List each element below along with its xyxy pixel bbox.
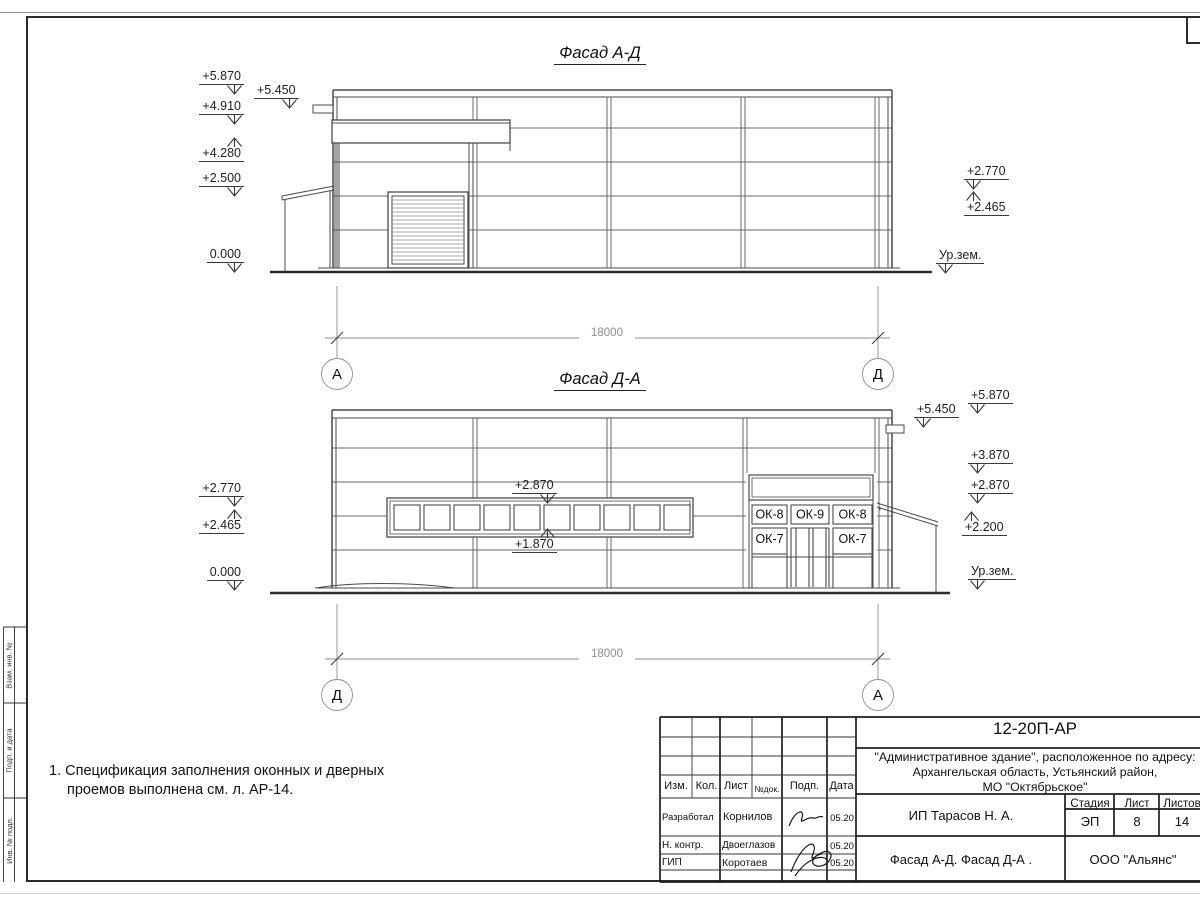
window-label: ОК-7 bbox=[838, 532, 866, 546]
drawing-sheet: Фасад А-Д +5.870 + bbox=[0, 0, 1200, 900]
stamp-side-cell: Подп. и дата bbox=[1, 703, 17, 798]
tb-project-line-3: МО "Октябрьское" bbox=[856, 780, 1200, 794]
sheet-note: 1. Спецификация заполнения оконных и две… bbox=[49, 762, 384, 800]
tb-stage-label: Стадия bbox=[1066, 797, 1114, 811]
tb-col-data: Дата bbox=[827, 779, 856, 793]
tb-date-developed: 05.20 bbox=[828, 812, 856, 826]
elevation-value: +4.280 bbox=[199, 147, 244, 162]
elevation-value: +2.770 bbox=[199, 482, 244, 497]
level-tick-down-icon bbox=[281, 99, 298, 109]
window-label: ОК-9 bbox=[796, 508, 824, 522]
tb-name-ncontrol: Двоеглазов bbox=[722, 839, 775, 853]
facade-ad-drawing bbox=[260, 75, 940, 280]
level-tick-down-icon bbox=[969, 404, 986, 414]
elevation-mark: +2.200 bbox=[962, 511, 1007, 536]
elevation-value: +2.465 bbox=[964, 201, 1009, 216]
elevation-mark: Ур.зем. bbox=[936, 249, 984, 274]
elevation-mark: +4.280 bbox=[199, 137, 244, 162]
elevation-value: 0.000 bbox=[207, 566, 244, 581]
elevation-mark: +1.870 bbox=[512, 528, 557, 553]
elevation-mark: 0.000 bbox=[207, 566, 244, 591]
tb-role-developed: Разработал bbox=[662, 811, 714, 825]
tb-col-izm: Изм. bbox=[660, 779, 692, 793]
elevation-value: 0.000 bbox=[207, 248, 244, 263]
elevation-mark: +2.465 bbox=[964, 191, 1009, 216]
note-line-1: 1. Спецификация заполнения оконных и две… bbox=[49, 762, 384, 781]
tb-client: ИП Тарасов Н. А. bbox=[857, 809, 1065, 823]
elevation-mark: +2.870 bbox=[968, 479, 1013, 504]
tb-date-gip: 05.20 bbox=[828, 857, 856, 871]
elevation-mark: +2.870 bbox=[512, 479, 557, 504]
tb-name-gip: Коротаев bbox=[722, 856, 767, 870]
tb-name-developed: Корнилов bbox=[723, 810, 772, 824]
stamp-side-cell: Инв. № подл. bbox=[1, 798, 17, 882]
tb-col-podp: Подп. bbox=[782, 779, 827, 793]
corner-doc-box bbox=[1186, 18, 1200, 44]
stamp-side-label: Подп. и дата bbox=[5, 728, 14, 772]
tb-col-kol: Кол. bbox=[693, 779, 720, 793]
axis-label: А bbox=[332, 366, 342, 383]
tb-role-ncontrol: Н. контр. bbox=[662, 839, 703, 853]
tb-company: ООО "Альянс" bbox=[1066, 853, 1200, 867]
axis-label: Д bbox=[873, 366, 883, 383]
window-label: ОК-8 bbox=[838, 508, 866, 522]
elevation-value: +2.870 bbox=[512, 479, 557, 494]
level-tick-down-icon bbox=[965, 180, 982, 190]
tb-sheets-value: 14 bbox=[1160, 815, 1200, 829]
elevation-mark: +4.910 bbox=[199, 100, 244, 125]
note-line-2: проемов выполнена см. л. АР-14. bbox=[49, 781, 384, 800]
stamp-side-cell: Взам. инв. № bbox=[1, 627, 17, 703]
elevation-mark: Ур.зем. bbox=[968, 565, 1016, 590]
level-tick-down-icon bbox=[969, 580, 986, 590]
elevation-value: +3.870 bbox=[968, 449, 1013, 464]
level-tick-down-icon bbox=[915, 418, 932, 428]
tb-col-list: Лист bbox=[720, 779, 752, 793]
tb-col-ndok: №док. bbox=[752, 782, 782, 796]
level-tick-down-icon bbox=[226, 497, 243, 507]
tb-stage-value: ЭП bbox=[1066, 815, 1114, 829]
elevation-value: +2.870 bbox=[968, 479, 1013, 494]
elevation-value: +2.500 bbox=[199, 172, 244, 187]
sheet-outer-top-line bbox=[0, 12, 1200, 13]
elevation-mark: 0.000 bbox=[207, 248, 244, 273]
level-tick-down-icon bbox=[969, 494, 986, 504]
tb-date-ncontrol: 05.20 bbox=[828, 840, 856, 854]
facade-da-drawing: ОК-8 ОК-9 ОК-8 ОК-7 ОК-7 bbox=[260, 395, 960, 605]
tb-project-line-1: "Административное здание", расположенное… bbox=[856, 750, 1200, 764]
elevation-mark: +2.770 bbox=[964, 165, 1009, 190]
elevation-mark: +5.870 bbox=[199, 70, 244, 95]
level-tick-down-icon bbox=[539, 494, 556, 504]
level-tick-down-icon bbox=[226, 115, 243, 125]
elevation-value: +2.770 bbox=[964, 165, 1009, 180]
elevation-value: +5.450 bbox=[914, 403, 959, 418]
elevation-mark: +2.770 bbox=[199, 482, 244, 507]
elevation-mark: +5.450 bbox=[254, 84, 299, 109]
elevation-mark: +2.465 bbox=[199, 509, 244, 534]
facade-ad-linework bbox=[270, 90, 932, 272]
sheet-outer-bottom-line bbox=[0, 893, 1200, 894]
facade-da-title-text: Фасад Д-А bbox=[554, 370, 646, 391]
tb-project-line-2: Архангельская область, Устьянский район, bbox=[856, 765, 1200, 779]
elevation-value: +5.450 bbox=[254, 84, 299, 99]
dimension-value: 18000 bbox=[591, 648, 623, 660]
signature-icon bbox=[789, 812, 831, 876]
facade-ad-title-text: Фасад А-Д bbox=[554, 44, 646, 65]
facade-da-title: Фасад Д-А bbox=[500, 370, 700, 389]
level-tick-down-icon bbox=[226, 187, 243, 197]
elevation-value: +5.870 bbox=[968, 389, 1013, 404]
stamp-side-label: Взам. инв. № bbox=[5, 642, 14, 688]
facade-ad-title: Фасад А-Д bbox=[500, 44, 700, 63]
tb-sheets-label: Листов bbox=[1160, 797, 1200, 811]
elevation-value: Ур.зем. bbox=[968, 565, 1016, 580]
level-tick-down-icon bbox=[226, 581, 243, 591]
axis-label: А bbox=[873, 687, 883, 704]
elevation-value: +5.870 bbox=[199, 70, 244, 85]
stamp-side-label: Инв. № подл. bbox=[5, 817, 14, 864]
facade-da-linework bbox=[270, 410, 950, 593]
elevation-mark: +5.450 bbox=[914, 403, 959, 428]
dimension-value: 18000 bbox=[591, 327, 623, 339]
elevation-value: +4.910 bbox=[199, 100, 244, 115]
frame-top-line bbox=[26, 16, 1200, 18]
elevation-mark: +5.870 bbox=[968, 389, 1013, 414]
level-tick-down-icon bbox=[226, 263, 243, 273]
tb-sheet-value: 8 bbox=[1115, 815, 1159, 829]
elevation-mark: +3.870 bbox=[968, 449, 1013, 474]
elevation-value: +2.465 bbox=[199, 519, 244, 534]
level-tick-down-icon bbox=[969, 464, 986, 474]
elevation-value: Ур.зем. bbox=[936, 249, 984, 264]
elevation-value: +1.870 bbox=[512, 538, 557, 553]
axis-label: Д bbox=[332, 687, 342, 704]
elevation-value: +2.200 bbox=[962, 521, 1007, 536]
elevation-mark: +2.500 bbox=[199, 172, 244, 197]
level-tick-down-icon bbox=[937, 264, 954, 274]
tb-role-gip: ГИП bbox=[662, 856, 682, 870]
tb-sheet-label: Лист bbox=[1115, 797, 1159, 811]
tb-doc-number: 12-20П-АР bbox=[856, 722, 1200, 736]
window-label: ОК-7 bbox=[755, 532, 783, 546]
window-label: ОК-8 bbox=[755, 508, 783, 522]
tb-sheet-title: Фасад А-Д. Фасад Д-А . bbox=[857, 853, 1065, 867]
facade-da-dimension: 18000 Д А bbox=[255, 602, 945, 714]
level-tick-down-icon bbox=[226, 85, 243, 95]
